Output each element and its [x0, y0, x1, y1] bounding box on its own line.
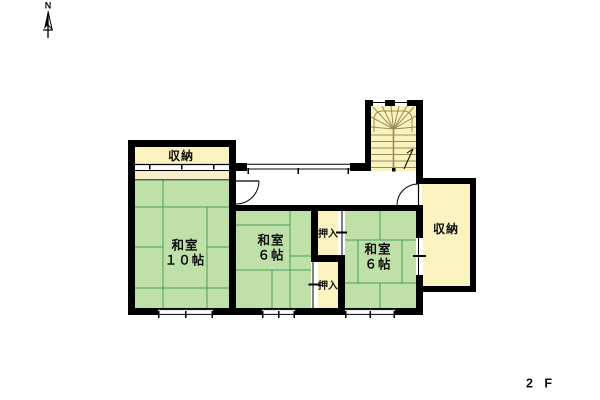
doors — [236, 181, 419, 205]
window-south-b — [262, 309, 295, 318]
room-name: 和室 — [257, 233, 284, 248]
room-size: ６帖 — [364, 257, 391, 272]
room-name: 和室 — [364, 242, 391, 257]
window-south-a — [158, 309, 213, 318]
room-label-washitsu-6-center: 和室 ６帖 — [257, 233, 284, 263]
room-label-storage-right: 収納 — [433, 222, 459, 236]
north-arrow-icon — [43, 11, 53, 38]
wall-east-upper — [416, 100, 423, 184]
compass-n: N — [45, 1, 52, 12]
compass-label: N — [45, 1, 52, 12]
floor-plan: N 収納 和室 １０帖 和室 ６帖 押入 押入 和室 ６帖 収納 2 F — [0, 0, 600, 400]
door-hall-west — [236, 181, 259, 204]
floor-label: 2 F — [526, 377, 556, 392]
room-size: ６帖 — [257, 248, 284, 263]
room-label-washitsu-6-right: 和室 ６帖 — [364, 242, 391, 272]
wall-north-tl — [128, 140, 236, 147]
wall-stair-west — [365, 100, 371, 171]
wall-hall-south — [229, 205, 423, 211]
room-name: 押入 — [318, 229, 338, 241]
room-label-storage-tl: 収納 — [168, 149, 194, 163]
wall-oshiire-east-lower — [338, 255, 345, 315]
room-name: 収納 — [168, 149, 194, 163]
floor-text: 2 F — [526, 377, 556, 392]
window-stair-2 — [395, 100, 407, 106]
room-name: 収納 — [433, 222, 459, 236]
wall-oshiire-west-upper — [311, 205, 318, 262]
door-hall-east — [397, 184, 419, 205]
room-label-oshiire-bottom: 押入 — [318, 281, 338, 293]
closet-door-band-fill — [135, 170, 229, 180]
wall-storage-right-east — [470, 178, 476, 292]
wall-west — [128, 140, 135, 315]
wall-storage-right-north — [416, 178, 476, 184]
room-size: １０帖 — [165, 253, 206, 268]
window-stair-1 — [373, 100, 385, 106]
room-name: 押入 — [318, 281, 338, 293]
floor-plan-drawing — [0, 0, 600, 400]
wall-stair-north-1 — [365, 100, 373, 106]
room-label-oshiire-top: 押入 — [318, 229, 338, 241]
window-south-c — [345, 309, 395, 318]
wall-storage-right-south — [416, 286, 476, 292]
room-label-washitsu-10: 和室 １０帖 — [165, 238, 206, 268]
wall-stair-north-2 — [385, 100, 395, 106]
wall-hall-north-left — [229, 163, 247, 171]
wall-oshiire-divider — [311, 255, 345, 262]
window-hall-north — [247, 163, 350, 174]
room-name: 和室 — [165, 238, 206, 253]
